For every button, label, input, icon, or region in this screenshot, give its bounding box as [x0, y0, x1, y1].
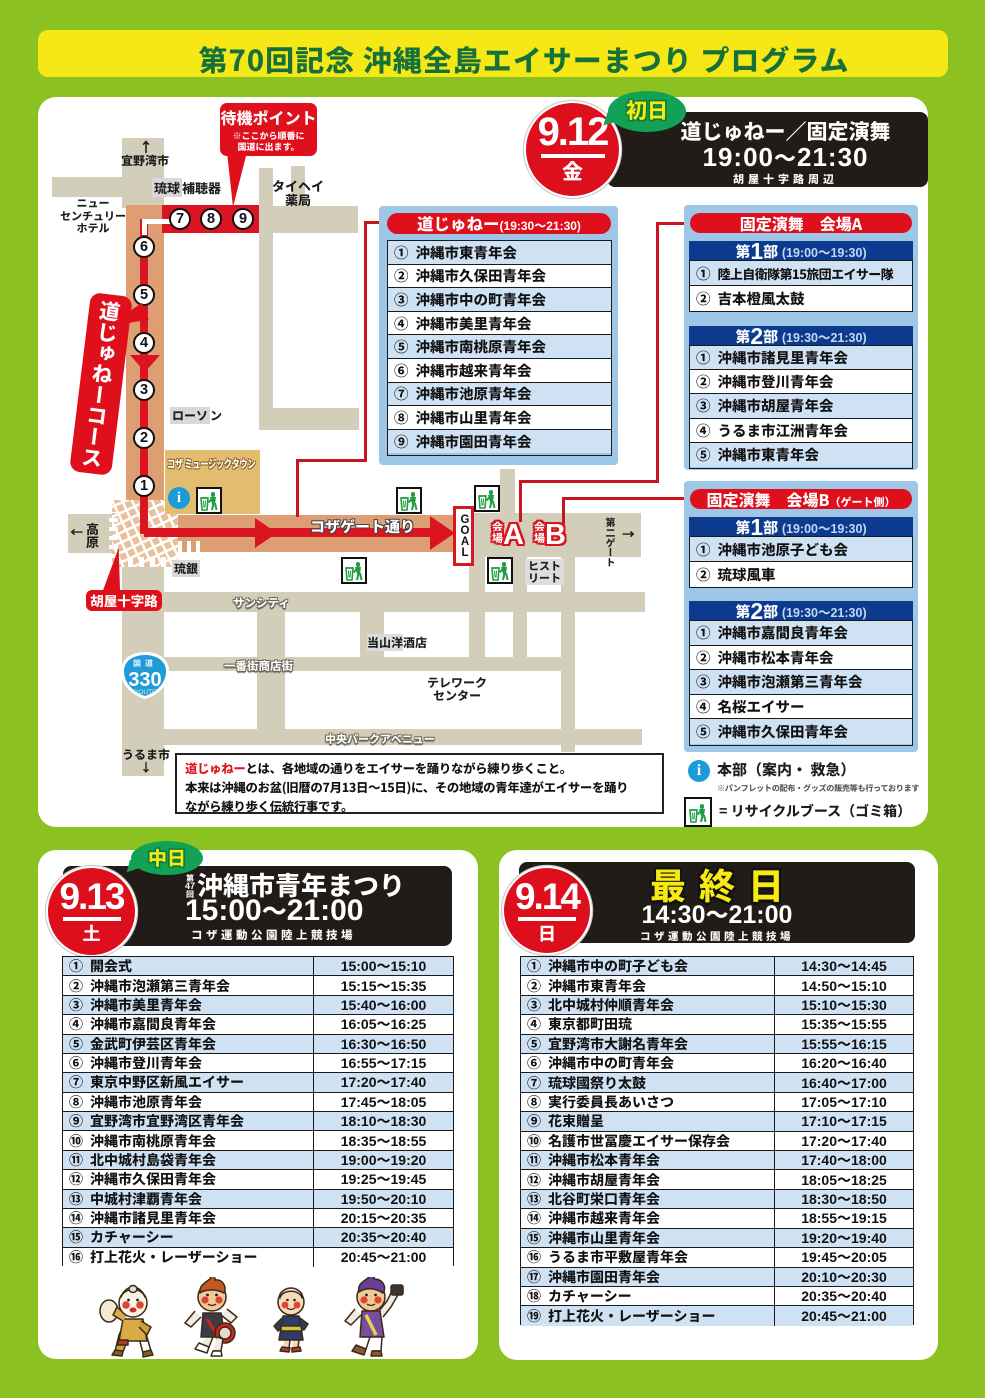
svg-text:330: 330: [128, 669, 161, 691]
svg-text:国道: 国道: [133, 658, 157, 669]
svg-text:ROUTE: ROUTE: [134, 689, 157, 696]
